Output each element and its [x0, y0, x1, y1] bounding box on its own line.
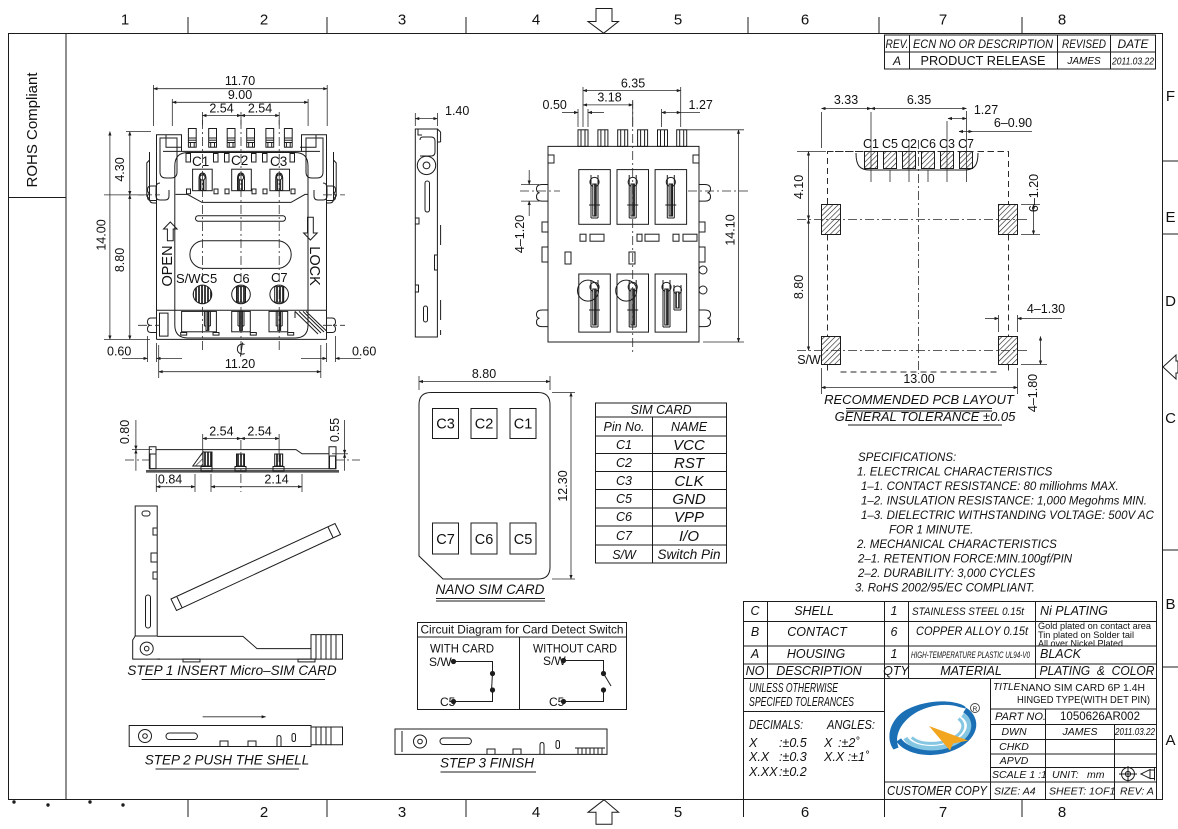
svg-text:8.80: 8.80	[472, 367, 496, 381]
svg-text:PLATING & COLOR: PLATING & COLOR	[1040, 664, 1155, 678]
svg-text:All over Nickel Plated .: All over Nickel Plated .	[1038, 639, 1128, 649]
svg-text:0.55: 0.55	[328, 418, 342, 442]
svg-text:1.27: 1.27	[689, 98, 713, 112]
svg-text:C: C	[1165, 410, 1176, 427]
svg-text:HIGH-TEMPERATURE PLASTIC UL94-: HIGH-TEMPERATURE PLASTIC UL94-V0	[911, 650, 1030, 661]
svg-text:6–1.20: 6–1.20	[1027, 174, 1041, 212]
svg-text:C3: C3	[436, 417, 455, 433]
svg-text:14.10: 14.10	[724, 214, 738, 245]
svg-text::±0.5: :±0.5	[779, 736, 807, 750]
svg-text:RECOMMENDED PCB LAYOUT: RECOMMENDED PCB LAYOUT	[824, 392, 1015, 407]
svg-text::±2˚: :±2˚	[838, 736, 860, 750]
svg-text:6: 6	[891, 625, 898, 639]
svg-text:14.00: 14.00	[95, 219, 109, 250]
svg-text:4.10: 4.10	[792, 175, 806, 199]
svg-text:2: 2	[260, 804, 268, 821]
svg-text:MATERIAL: MATERIAL	[940, 664, 1002, 678]
svg-text:1.40: 1.40	[445, 104, 469, 118]
svg-text:C5: C5	[616, 492, 632, 506]
svg-text:3: 3	[398, 12, 406, 29]
svg-text:DESCRIPTION: DESCRIPTION	[776, 664, 862, 678]
svg-text:0.60: 0.60	[107, 345, 131, 359]
svg-text:4–1.80: 4–1.80	[1026, 374, 1040, 412]
svg-text:8.80: 8.80	[792, 275, 806, 299]
svg-text:C7: C7	[616, 529, 633, 543]
svg-text:CONTACT: CONTACT	[787, 625, 848, 639]
svg-text:SCALE 1 :1: SCALE 1 :1	[992, 769, 1047, 781]
svg-text:S/W: S/W	[797, 353, 821, 367]
svg-text:2011.03.22: 2011.03.22	[1114, 727, 1155, 738]
svg-text:1: 1	[891, 647, 898, 661]
svg-text:2: 2	[260, 12, 268, 29]
svg-text:HOUSING: HOUSING	[787, 647, 846, 661]
svg-text:6: 6	[801, 12, 809, 29]
svg-text:VCC: VCC	[673, 437, 705, 454]
svg-text:11.70: 11.70	[225, 74, 255, 88]
svg-text:D: D	[1165, 293, 1176, 310]
svg-text:C7: C7	[436, 532, 455, 548]
svg-text:0.84: 0.84	[158, 473, 182, 487]
svg-text:PART NO.: PART NO.	[995, 711, 1046, 723]
svg-text:F: F	[1166, 88, 1175, 105]
svg-text:ROHS Compliant: ROHS Compliant	[24, 72, 41, 188]
svg-text:1. ELECTRICAL CHARACTERISTIC: 1. ELECTRICAL CHARACTERISTICS	[857, 467, 1053, 479]
svg-text:2. MECHANICAL CHARACTERISTIC: 2. MECHANICAL CHARACTERISTICS	[856, 539, 1057, 551]
svg-text:CHKD: CHKD	[999, 741, 1029, 753]
svg-text:GND: GND	[672, 491, 706, 508]
svg-text:3.33: 3.33	[834, 93, 858, 107]
svg-text:8.80: 8.80	[113, 248, 127, 272]
svg-text:C1: C1	[192, 154, 209, 169]
svg-text:1: 1	[891, 604, 898, 618]
svg-text:mm: mm	[1087, 769, 1105, 781]
svg-text:C5: C5	[882, 137, 898, 151]
svg-text:CUSTOMER COPY: CUSTOMER COPY	[887, 783, 988, 798]
svg-text:UNIT:: UNIT:	[1052, 769, 1079, 781]
svg-text:GENERAL TOLERANCE ±0.05: GENERAL TOLERANCE ±0.05	[835, 409, 1017, 424]
svg-text:3: 3	[398, 804, 406, 821]
svg-text:X: X	[748, 736, 758, 750]
svg-text:4: 4	[532, 12, 540, 29]
svg-text:6–0.90: 6–0.90	[994, 116, 1032, 130]
svg-text:PRODUCT RELEASE: PRODUCT RELEASE	[921, 53, 1046, 68]
svg-text:4–1.30: 4–1.30	[1027, 302, 1065, 316]
svg-text:STAINLESS STEEL 0.15t: STAINLESS STEEL 0.15t	[912, 606, 1025, 618]
svg-text:2.14: 2.14	[264, 473, 288, 487]
svg-text:2.54: 2.54	[247, 425, 271, 439]
svg-text:Pin No.: Pin No.	[604, 420, 645, 434]
svg-text:DWN: DWN	[1001, 726, 1026, 738]
svg-text:1: 1	[121, 12, 129, 29]
svg-text:OPEN: OPEN	[160, 245, 176, 286]
svg-text:NAME: NAME	[671, 420, 708, 434]
svg-text:FOR 1 MINUTE.: FOR 1 MINUTE.	[889, 525, 973, 537]
svg-text:JAMES: JAMES	[1066, 56, 1101, 67]
svg-text:5: 5	[674, 804, 682, 821]
svg-text:STEP 2 PUSH THE SHELL: STEP 2 PUSH THE SHELL	[145, 753, 310, 768]
svg-text:REV.: REV.	[886, 37, 909, 51]
svg-text:2–1. RETENTION FORCE:MIN.100: 2–1. RETENTION FORCE:MIN.100gf/PIN	[857, 554, 1073, 566]
svg-text:1050626AR002: 1050626AR002	[1060, 711, 1140, 723]
svg-text:2–2. DURABILITY: 3,000 CYCL: 2–2. DURABILITY: 3,000 CYCLES	[857, 568, 1036, 580]
svg-text:B: B	[1165, 596, 1175, 613]
svg-text:SPECIFICATIONS:: SPECIFICATIONS:	[858, 452, 956, 464]
svg-text:NANO SIM CARD 6P 1.4H: NANO SIM CARD 6P 1.4H	[1021, 682, 1145, 694]
svg-text:6.35: 6.35	[621, 77, 645, 91]
svg-text:2011.03.22: 2011.03.22	[1111, 57, 1154, 68]
svg-text:13.00: 13.00	[903, 372, 934, 386]
svg-text:6.35: 6.35	[907, 93, 931, 107]
svg-text:Circuit Diagram for Card D: Circuit Diagram for Card Detect Switch	[421, 623, 624, 637]
svg-text:6: 6	[801, 804, 809, 821]
svg-text:4.30: 4.30	[113, 157, 127, 181]
svg-text:REV: A: REV: A	[1120, 786, 1154, 798]
svg-text:8: 8	[1058, 12, 1066, 29]
svg-text:0.80: 0.80	[118, 420, 132, 444]
svg-text:WITH CARD: WITH CARD	[430, 644, 494, 656]
svg-text:C6: C6	[920, 137, 936, 151]
svg-text:SPECIFED TOLERANCES: SPECIFED TOLERANCES	[749, 695, 854, 709]
svg-text:SHELL: SHELL	[794, 604, 834, 618]
svg-text:QTY: QTY	[883, 664, 910, 678]
svg-text:C: C	[750, 604, 760, 618]
svg-text:C3: C3	[616, 474, 632, 488]
svg-text:C5: C5	[514, 532, 533, 548]
svg-text:S/W: S/W	[612, 548, 637, 562]
svg-text:ANGLES:: ANGLES:	[826, 718, 875, 732]
svg-text:C2: C2	[475, 417, 494, 433]
svg-text:2.54: 2.54	[209, 425, 233, 439]
svg-text:7: 7	[939, 804, 947, 821]
svg-text:C1: C1	[616, 438, 632, 452]
svg-text:Ni PLATING: Ni PLATING	[1040, 604, 1108, 618]
svg-text:STEP 1 INSERT Micro–SIM CA: STEP 1 INSERT Micro–SIM CARD	[127, 663, 337, 678]
svg-text:C6: C6	[475, 532, 494, 548]
svg-text:ECN NO OR DESCRIPTION: ECN NO OR DESCRIPTION	[913, 37, 1053, 51]
svg-text:1.27: 1.27	[974, 103, 998, 117]
svg-text:S/W: S/W	[429, 655, 452, 669]
svg-text:TITLE:: TITLE:	[993, 682, 1023, 693]
svg-text:BLACK: BLACK	[1040, 647, 1082, 661]
svg-text:I/O: I/O	[679, 528, 699, 545]
svg-text:4: 4	[532, 804, 540, 821]
svg-text:C1: C1	[514, 417, 533, 433]
svg-text:X: X	[823, 736, 833, 750]
svg-text:2.54: 2.54	[248, 102, 272, 116]
svg-text:X.X: X.X	[748, 750, 770, 764]
svg-text:B: B	[751, 625, 759, 639]
svg-text:X.XX: X.XX	[748, 765, 778, 779]
svg-text:C6: C6	[616, 510, 632, 524]
svg-text:JAMES: JAMES	[1061, 726, 1097, 738]
svg-text:C2: C2	[616, 456, 632, 470]
svg-text:VPP: VPP	[674, 509, 704, 526]
svg-text:DATE: DATE	[1117, 37, 1149, 51]
svg-text::±0.2: :±0.2	[779, 765, 807, 779]
svg-text:0.60: 0.60	[352, 345, 376, 359]
svg-text:SIZE: A4: SIZE: A4	[994, 786, 1036, 798]
svg-text:A: A	[750, 647, 759, 661]
svg-text:NO: NO	[746, 664, 765, 678]
svg-text:A: A	[892, 54, 901, 68]
svg-text:STEP 3 FINISH: STEP 3 FINISH	[440, 756, 534, 771]
svg-text:3.18: 3.18	[597, 91, 621, 105]
svg-text:SIM CARD: SIM CARD	[630, 403, 691, 417]
svg-text:NANO SIM CARD: NANO SIM CARD	[436, 582, 545, 597]
svg-text:3. RoHS 2002/95/EC COMPLIAN: 3. RoHS 2002/95/EC COMPLIANT.	[855, 583, 1035, 595]
svg-text:A: A	[1165, 732, 1175, 749]
svg-text:C3: C3	[270, 154, 287, 169]
svg-text:RST: RST	[674, 455, 706, 472]
svg-text:Switch Pin: Switch Pin	[657, 547, 720, 562]
svg-text::±0.3: :±0.3	[779, 750, 807, 764]
svg-text:12.30: 12.30	[556, 470, 570, 501]
svg-text:UNLESS OTHERWISE: UNLESS OTHERWISE	[749, 681, 838, 695]
svg-text:5: 5	[674, 12, 682, 29]
svg-text:APVD: APVD	[999, 755, 1029, 767]
svg-text:8: 8	[1058, 804, 1066, 821]
svg-text:1–1. CONTACT RESISTANCE: 80: 1–1. CONTACT RESISTANCE: 80 milliohms MA…	[861, 481, 1119, 493]
svg-text:SHEET: 1OF1: SHEET: 1OF1	[1049, 786, 1115, 798]
svg-text:X.X :±1˚: X.X :±1˚	[823, 750, 870, 764]
svg-text:2.54: 2.54	[209, 102, 233, 116]
svg-text:LOCK: LOCK	[306, 246, 322, 286]
svg-text:C2: C2	[231, 153, 248, 168]
svg-text:11.20: 11.20	[225, 357, 255, 371]
svg-text:CLK: CLK	[674, 473, 704, 490]
svg-text:HINGED TYPE(WITH DET PIN): HINGED TYPE(WITH DET PIN)	[1017, 694, 1150, 706]
svg-text:4–1.20: 4–1.20	[513, 215, 527, 253]
svg-text:DECIMALS:: DECIMALS:	[749, 718, 803, 732]
svg-text:1–3. DIELECTRIC WITHSTANDING: 1–3. DIELECTRIC WITHSTANDING VOLTAGE: 50…	[861, 510, 1155, 522]
svg-text:E: E	[1165, 209, 1175, 226]
svg-text:REVISED: REVISED	[1062, 37, 1106, 51]
svg-text:7: 7	[939, 12, 947, 29]
svg-text:COPPER ALLOY 0.15t: COPPER ALLOY 0.15t	[916, 624, 1029, 638]
svg-text:R: R	[973, 706, 978, 713]
svg-text:1–2. INSULATION RESISTANCE:: 1–2. INSULATION RESISTANCE: 1,000 Megohm…	[861, 496, 1147, 508]
svg-text:0.50: 0.50	[543, 98, 567, 112]
svg-text:9.00: 9.00	[228, 88, 252, 102]
svg-text:S/WC5: S/WC5	[176, 271, 217, 286]
